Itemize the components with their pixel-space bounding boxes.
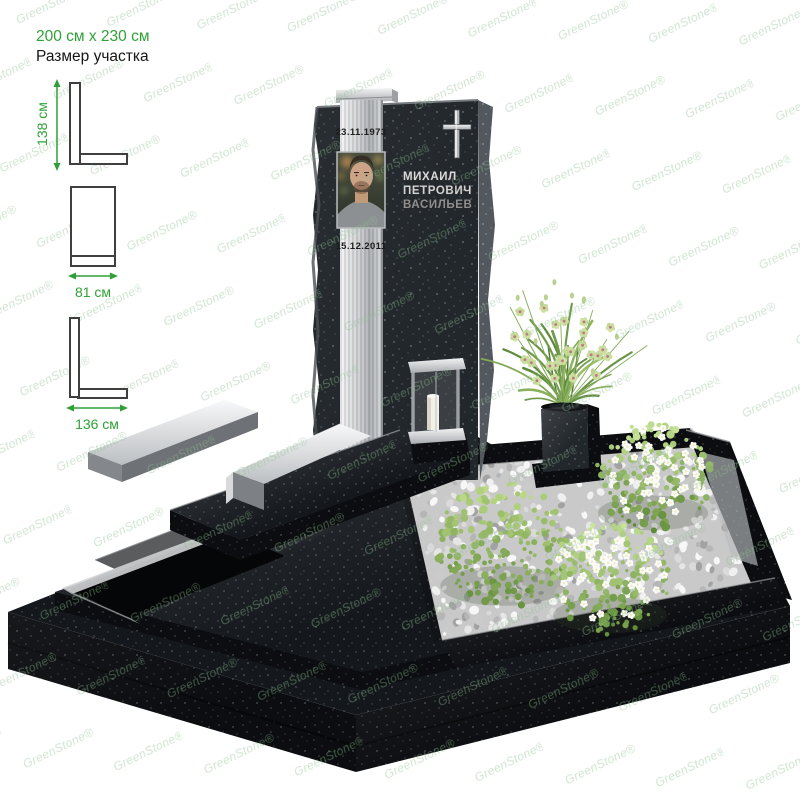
- name-line2-shadow: ПЕТРОВИЧ: [404, 186, 473, 198]
- height-dimension-arrow: [50, 79, 64, 171]
- plot-size-label: 200 см x 230 см: [36, 28, 150, 46]
- vase-flowers: [482, 279, 648, 408]
- headstone: 23.11.1973 15.12.2011: [313, 88, 495, 480]
- death-date: 15.12.2011: [335, 241, 386, 252]
- watermark-layer: [0, 0, 800, 800]
- steel-beam: [226, 424, 371, 510]
- headstone-side-face: [478, 100, 495, 480]
- flower-bush: [547, 523, 671, 637]
- birth-date: 23.11.1973: [335, 127, 386, 138]
- base-dimension-arrow: [66, 401, 128, 415]
- width-dimension-arrow: [68, 269, 118, 283]
- diagram-base-shape: [77, 153, 128, 165]
- memorial-product-render: GreenStone® GreenStone®: [0, 0, 800, 800]
- headstone-front-face: [313, 100, 478, 480]
- gravel-pebbles: [411, 439, 771, 640]
- lantern: [408, 358, 470, 464]
- stela-width-label: 81 см: [75, 284, 111, 300]
- ledger-slab: [170, 430, 470, 560]
- base-pedestal: [8, 430, 790, 772]
- diagram-base-shape: [77, 388, 128, 399]
- upper-platform: [55, 448, 748, 690]
- green-bush: [435, 482, 570, 609]
- base-width-label: 136 см: [75, 416, 119, 432]
- name-line3: ВАСИЛЬЕВ: [403, 199, 472, 211]
- name-engraving: МИХАИЛ МИХАИЛ ПЕТРОВИЧ ПЕТРОВИЧ ВАСИЛЬЕВ…: [403, 171, 473, 212]
- portrait-photo: [337, 152, 385, 228]
- candle: [427, 394, 439, 430]
- name-line1: МИХАИЛ: [403, 171, 457, 183]
- flower-bush: [595, 421, 714, 533]
- plot-size-caption: Размер участка: [36, 48, 149, 66]
- stela-height-label: 138 см: [34, 102, 50, 146]
- gravel-bed: [396, 438, 775, 642]
- memorial-scene: GreenStone® GreenStone®: [0, 0, 800, 800]
- flower-vase: [482, 279, 648, 488]
- granite-curbs: [396, 428, 792, 668]
- name-line3-shadow: ВАСИЛЬЕВ: [404, 200, 473, 212]
- name-line1-shadow: МИХАИЛ: [404, 172, 458, 184]
- diagram-stela-shape: [69, 82, 81, 165]
- name-line2: ПЕТРОВИЧ: [403, 185, 472, 197]
- diagram-slab-baseline: [72, 255, 114, 257]
- cross-icon: [443, 110, 471, 158]
- diagram-stela-shape: [69, 317, 80, 398]
- steel-band: [336, 88, 398, 452]
